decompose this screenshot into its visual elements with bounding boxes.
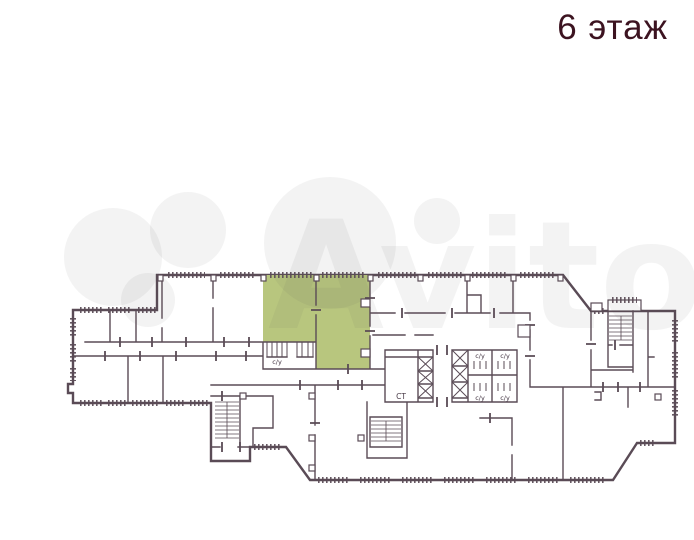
bathroom-label: с/у bbox=[500, 394, 510, 402]
bathroom-label: с/у bbox=[272, 358, 282, 366]
floor-plan: Avito bbox=[0, 0, 694, 540]
wall-tab bbox=[314, 275, 319, 281]
column bbox=[358, 435, 364, 441]
staircase-hatch-right bbox=[609, 316, 632, 340]
wall-tab bbox=[368, 275, 373, 281]
door-notch bbox=[361, 299, 370, 307]
wall-tab bbox=[465, 275, 470, 281]
stairs-label: СТ bbox=[396, 392, 406, 401]
wall-tab bbox=[261, 275, 266, 281]
wall-tab bbox=[511, 275, 516, 281]
wall-tab bbox=[211, 275, 216, 281]
column bbox=[655, 394, 661, 400]
duct-box bbox=[591, 303, 602, 311]
floorplan-page: 6 этаж Avito bbox=[0, 0, 694, 540]
column bbox=[240, 393, 246, 399]
door-notch bbox=[361, 349, 370, 357]
watermark-circle bbox=[121, 273, 175, 327]
bathroom-label: с/у bbox=[475, 352, 485, 360]
watermark-circle bbox=[150, 192, 226, 268]
wall-tab bbox=[558, 275, 563, 281]
bathroom-label: с/у bbox=[475, 394, 485, 402]
column bbox=[309, 393, 315, 399]
bathroom-label: с/у bbox=[500, 352, 510, 360]
duct-box bbox=[518, 325, 530, 337]
column bbox=[309, 435, 315, 441]
wall-tab bbox=[158, 275, 163, 281]
column bbox=[309, 465, 315, 471]
wall-tab bbox=[418, 275, 423, 281]
